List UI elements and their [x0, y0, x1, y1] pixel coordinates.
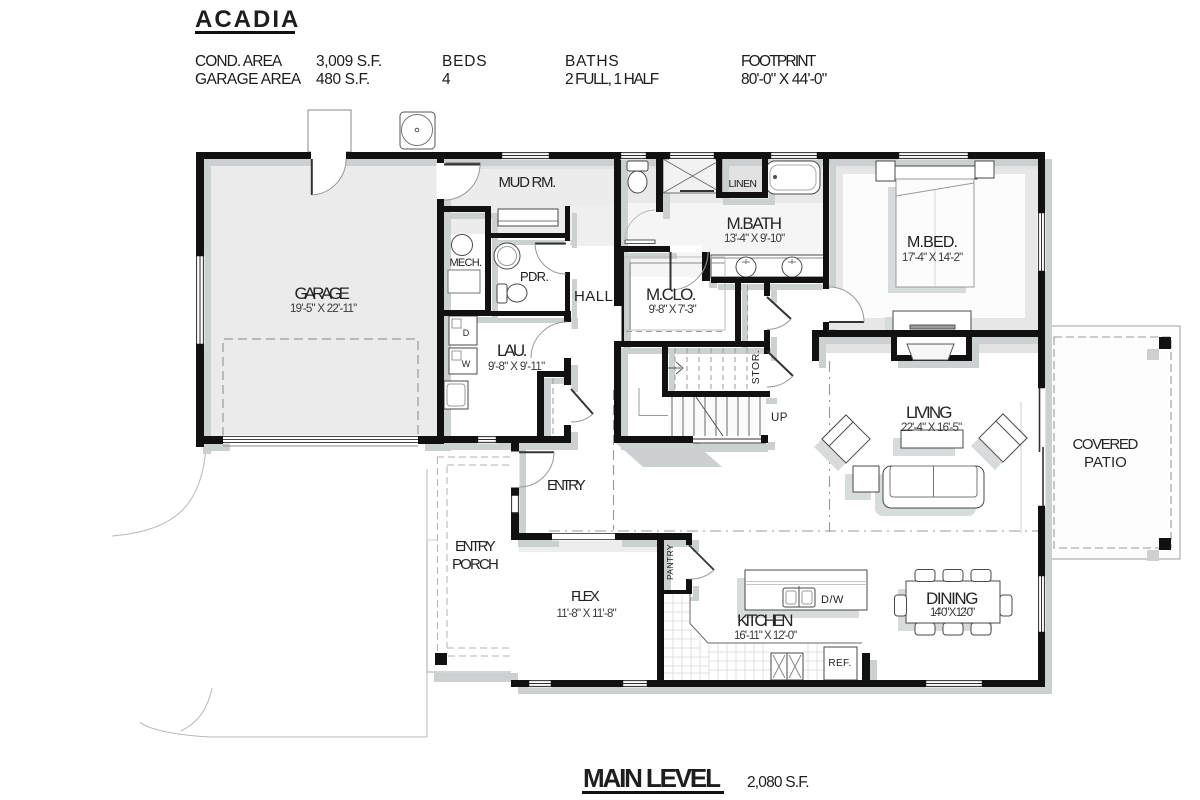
svg-text:19'-5" X 22'-11": 19'-5" X 22'-11" [290, 303, 358, 315]
svg-text:80'-0" X 44'-0": 80'-0" X 44'-0" [741, 71, 828, 88]
svg-text:3,009 S.F.: 3,009 S.F. [316, 53, 383, 70]
svg-text:PORCH: PORCH [452, 556, 500, 573]
svg-text:FOOTPRINT: FOOTPRINT [741, 53, 817, 70]
svg-text:COVERED: COVERED [1073, 436, 1140, 453]
svg-text:W: W [462, 359, 471, 369]
svg-text:ENTRY: ENTRY [455, 538, 497, 555]
svg-text:LIVING: LIVING [906, 403, 954, 422]
svg-text:GARAGE: GARAGE [295, 284, 352, 303]
svg-text:PANTRY: PANTRY [665, 544, 675, 580]
svg-text:KITCHEN: KITCHEN [737, 611, 795, 630]
svg-text:M.BED.: M.BED. [907, 234, 959, 251]
svg-text:UP: UP [771, 412, 788, 424]
svg-text:GARAGE AREA: GARAGE AREA [195, 71, 302, 88]
svg-text:MUD RM.: MUD RM. [499, 174, 558, 191]
svg-text:17'-4" X 14'-2": 17'-4" X 14'-2" [902, 252, 964, 264]
svg-text:PDR.: PDR. [520, 269, 550, 284]
svg-text:14'-0" X 12'-0": 14'-0" X 12'-0" [930, 607, 976, 619]
svg-text:16'-11" X 12'-0": 16'-11" X 12'-0" [734, 630, 798, 642]
svg-text:BEDS: BEDS [442, 53, 487, 70]
svg-text:STOR.: STOR. [750, 350, 762, 384]
svg-text:LINEN: LINEN [729, 178, 758, 190]
svg-text:REF.: REF. [828, 658, 851, 669]
svg-text:M.BATH: M.BATH [727, 214, 784, 233]
svg-text:MAIN LEVEL: MAIN LEVEL [583, 763, 723, 793]
svg-text:FLEX: FLEX [571, 588, 601, 605]
svg-text:480 S.F.: 480 S.F. [316, 71, 371, 88]
svg-text:4: 4 [442, 71, 451, 88]
svg-text:MECH.: MECH. [450, 257, 483, 269]
svg-text:13'-4" X 9'-10": 13'-4" X 9'-10" [724, 233, 786, 245]
svg-text:9'-8" X 7'-3": 9'-8" X 7'-3" [649, 304, 698, 316]
svg-text:D: D [463, 328, 470, 338]
svg-text:9'-8" X 9'-11": 9'-8" X 9'-11" [488, 361, 546, 373]
svg-text:11'-8" X 11'-8": 11'-8" X 11'-8" [557, 608, 618, 620]
svg-text:D/W: D/W [821, 594, 844, 606]
svg-text:22'-4" X 16'-5": 22'-4" X 16'-5" [901, 422, 963, 434]
svg-text:2,080 S.F.: 2,080 S.F. [747, 774, 810, 791]
svg-text:COND. AREA: COND. AREA [195, 53, 283, 70]
svg-text:DINING: DINING [926, 589, 980, 608]
svg-text:ENTRY: ENTRY [547, 477, 587, 494]
svg-text:PATIO: PATIO [1084, 454, 1128, 471]
svg-text:2 FULL, 1 HALF: 2 FULL, 1 HALF [565, 71, 660, 88]
svg-text:HALL: HALL [574, 288, 614, 305]
svg-text:ACADIA: ACADIA [195, 6, 300, 33]
svg-text:BATHS: BATHS [565, 53, 620, 70]
svg-text:M.CLO.: M.CLO. [646, 285, 698, 304]
svg-text:LAU.: LAU. [497, 341, 529, 360]
